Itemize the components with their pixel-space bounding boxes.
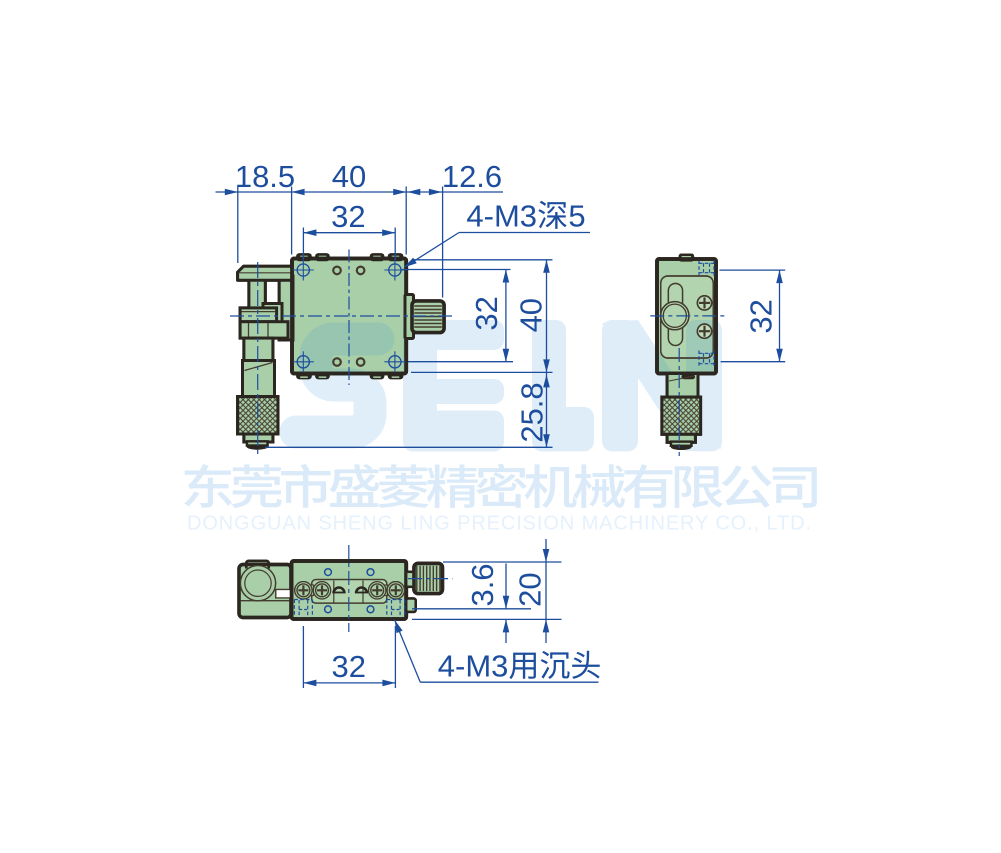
svg-text:25.8: 25.8 xyxy=(515,382,550,442)
svg-text:20: 20 xyxy=(513,572,548,606)
svg-text:40: 40 xyxy=(513,298,548,332)
svg-text:4-M3: 4-M3 xyxy=(466,199,537,234)
svg-text:DONGGUAN SHENG LING PRECISION: DONGGUAN SHENG LING PRECISION MACHINERY … xyxy=(187,513,811,535)
svg-text:32: 32 xyxy=(469,296,504,330)
svg-text:4-M3: 4-M3 xyxy=(438,649,509,684)
svg-text:40: 40 xyxy=(332,159,366,194)
svg-text:32: 32 xyxy=(331,649,365,684)
svg-text:3.6: 3.6 xyxy=(465,563,500,606)
svg-text:32: 32 xyxy=(331,199,365,234)
svg-text:32: 32 xyxy=(744,299,779,333)
svg-text:18.5: 18.5 xyxy=(235,159,295,194)
svg-text:5: 5 xyxy=(568,199,585,234)
svg-text:12.6: 12.6 xyxy=(442,159,502,194)
